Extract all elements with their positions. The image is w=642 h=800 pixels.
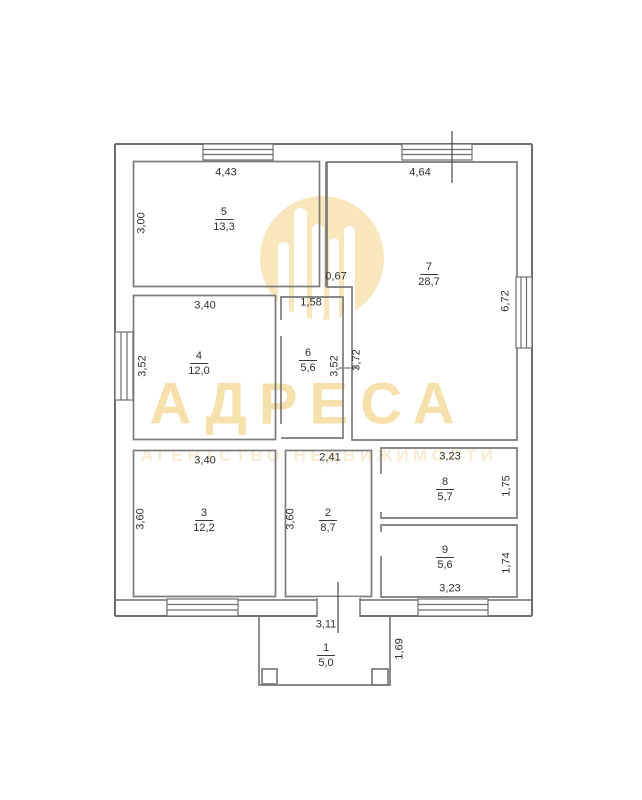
dim-room4-width: 3,40 <box>194 301 215 312</box>
floorplan-canvas: АДРЕСА АГЕНТСТВО НЕДВИЖИМОСТИ <box>0 0 642 800</box>
room-5-area: 13,3 <box>213 220 234 233</box>
dim-room9-width: 3,23 <box>439 584 460 595</box>
room-7-area: 28,7 <box>418 275 439 288</box>
room-2-area: 8,7 <box>319 521 337 534</box>
room-4-tag: 4 12,0 <box>188 350 209 377</box>
room-9-number: 9 <box>436 544 454 558</box>
room-5-tag: 5 13,3 <box>213 206 234 233</box>
dim-room3-height: 3,60 <box>136 508 147 529</box>
room-9-tag: 9 5,6 <box>436 544 454 571</box>
dim-room5-height: 3,00 <box>137 212 148 233</box>
room-6-tag: 6 5,6 <box>299 347 317 374</box>
dim-room2-height: 3,60 <box>286 508 297 529</box>
dim-room9-height: 1,74 <box>502 552 513 573</box>
room-6-number: 6 <box>299 347 317 361</box>
room-8-area: 5,7 <box>436 490 454 503</box>
dim-room3-width: 3,40 <box>194 456 215 467</box>
room-7-tag: 7 28,7 <box>418 261 439 288</box>
room-1-area: 5,0 <box>317 656 335 669</box>
room-5-number: 5 <box>215 206 233 220</box>
room-3-number: 3 <box>195 507 213 521</box>
dim-porch-height: 1,69 <box>395 638 406 659</box>
room-2-tag: 2 8,7 <box>319 507 337 534</box>
room-1-number: 1 <box>317 642 335 656</box>
room-8-tag: 8 5,7 <box>436 476 454 503</box>
room-3-tag: 3 12,2 <box>193 507 214 534</box>
room-9-area: 5,6 <box>436 558 454 571</box>
dim-wall-jog: 0,67 <box>325 272 346 283</box>
dim-room6-width: 1,58 <box>300 298 321 309</box>
dim-room7-width: 4,64 <box>409 168 430 179</box>
dim-room6-height: 3,52 <box>330 355 341 376</box>
dim-room8-width: 3,23 <box>439 452 460 463</box>
room-7-number: 7 <box>420 261 438 275</box>
dim-room7-inner-height: 3,72 <box>352 349 363 370</box>
room-4-number: 4 <box>190 350 208 364</box>
dim-room8-height: 1,75 <box>502 475 513 496</box>
dim-room2-width: 2,41 <box>319 453 340 464</box>
dim-room7-height: 6,72 <box>501 290 512 311</box>
room-6-area: 5,6 <box>299 361 317 374</box>
dim-porch-width: 3,11 <box>316 620 337 631</box>
dim-room5-width: 4,43 <box>215 168 236 179</box>
room-2-number: 2 <box>319 507 337 521</box>
room-3-area: 12,2 <box>193 521 214 534</box>
room-1-tag: 1 5,0 <box>317 642 335 669</box>
room-4-area: 12,0 <box>188 364 209 377</box>
plan-labels: 4,43 4,64 0,67 1,58 3,40 3,40 2,41 3,23 … <box>0 0 642 800</box>
room-8-number: 8 <box>436 476 454 490</box>
dim-room4-height: 3,52 <box>138 355 149 376</box>
